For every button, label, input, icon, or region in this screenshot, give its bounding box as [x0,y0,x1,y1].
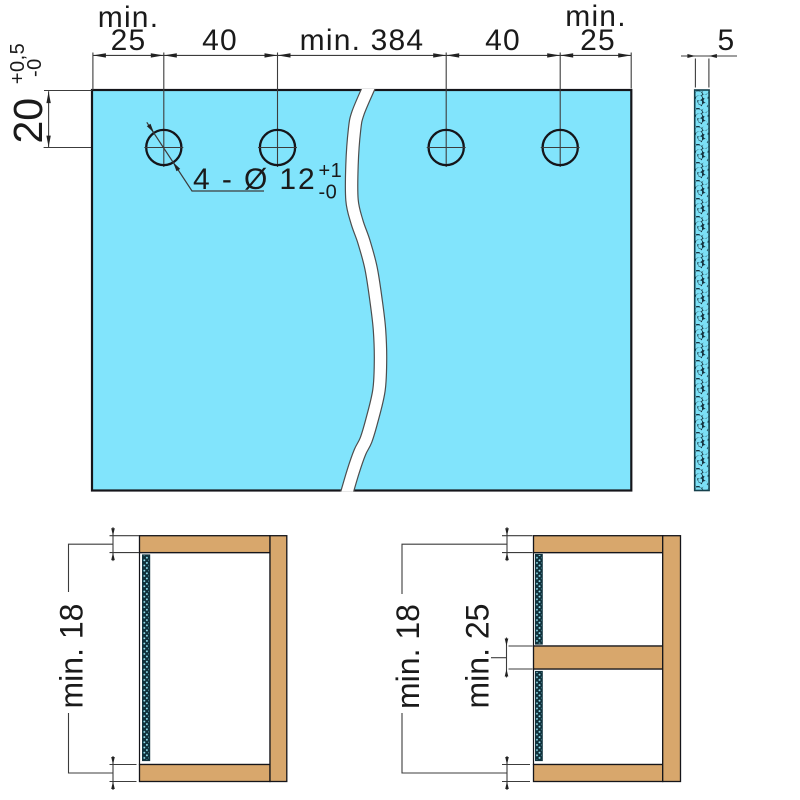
svg-text:min. 25: min. 25 [460,604,496,709]
svg-text:4 - Ø 12: 4 - Ø 12 [193,163,317,196]
svg-text:5: 5 [718,24,736,57]
svg-text:min. 18: min. 18 [54,604,90,709]
svg-text:min. 18: min. 18 [390,604,426,709]
svg-text:25: 25 [580,24,616,57]
svg-text:40: 40 [202,24,238,57]
svg-text:-0: -0 [319,182,338,204]
svg-text:-0: -0 [24,58,46,77]
svg-text:+1: +1 [319,160,343,182]
svg-text:40: 40 [485,24,521,57]
svg-text:20: 20 [5,98,51,144]
svg-text:min. 384: min. 384 [300,24,425,57]
svg-text:25: 25 [111,24,147,57]
